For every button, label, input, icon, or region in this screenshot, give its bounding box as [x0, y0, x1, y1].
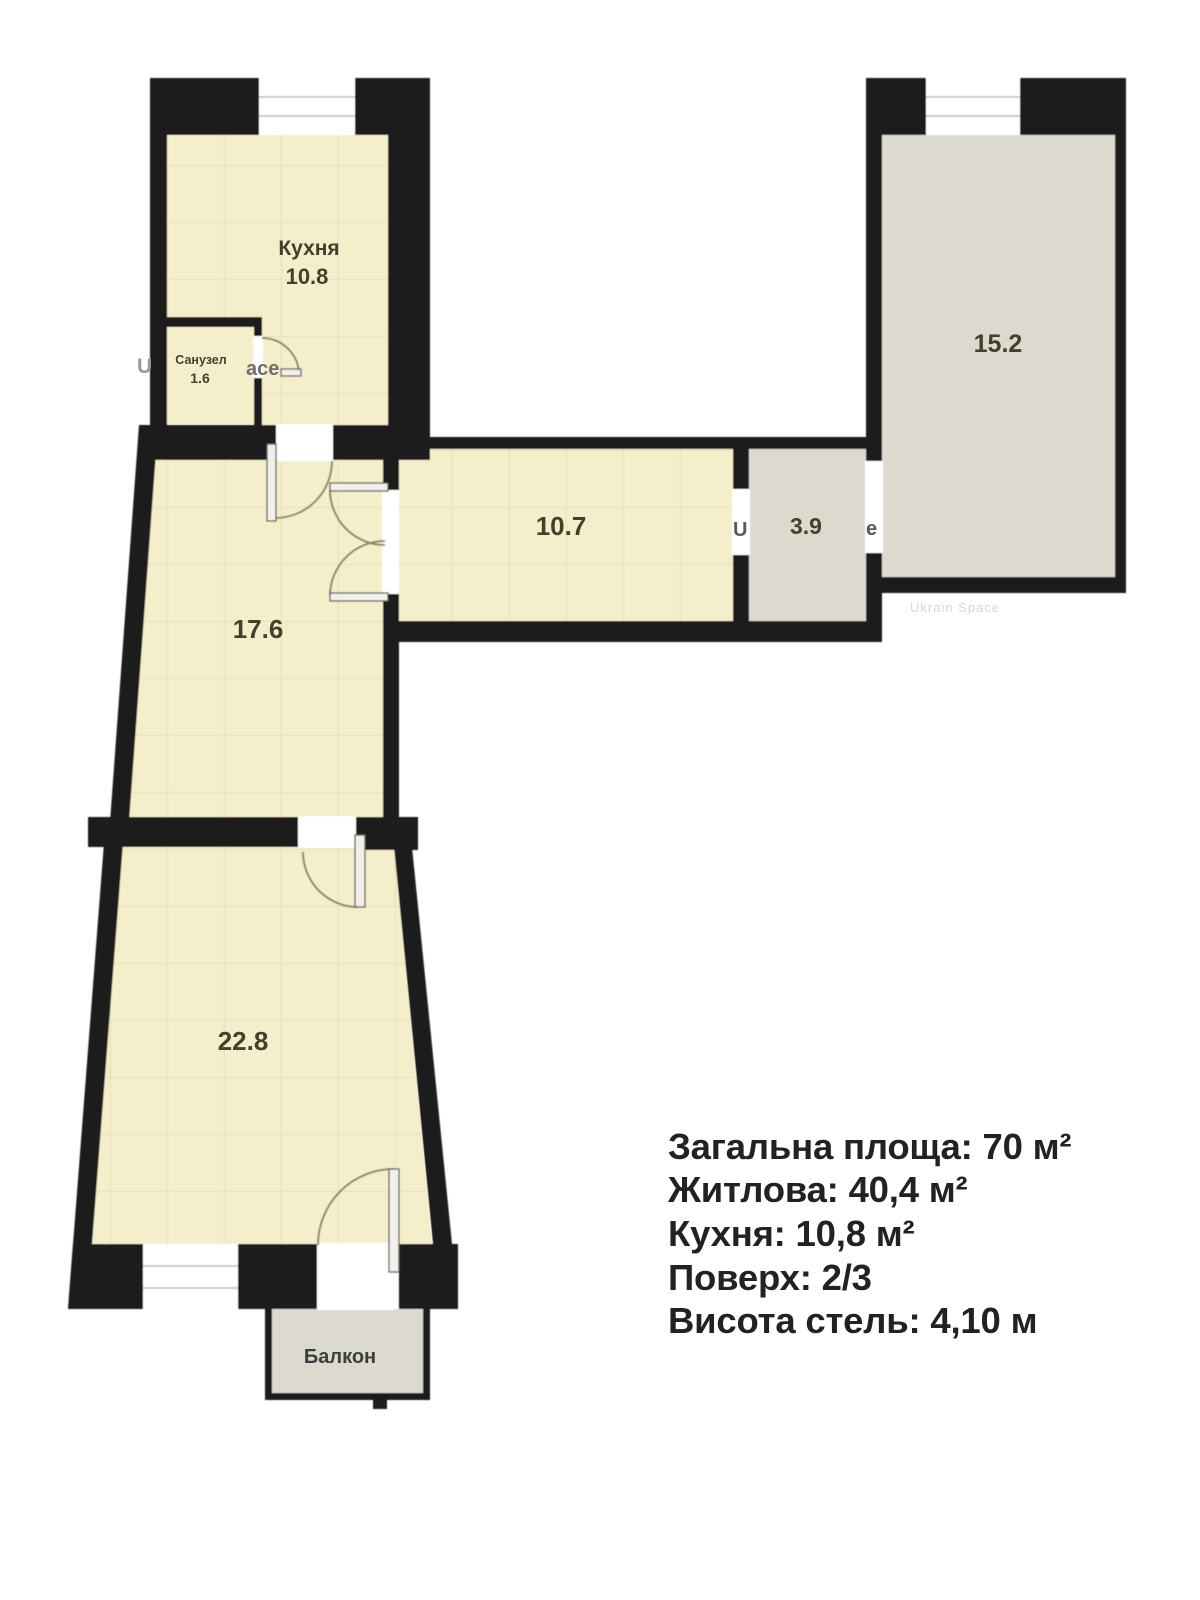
svg-text:U: U	[137, 355, 152, 378]
svg-text:3.9: 3.9	[790, 513, 822, 539]
svg-text:Загальна площа: 70 м²: Загальна площа: 70 м²	[668, 1126, 1071, 1167]
svg-text:10.8: 10.8	[286, 264, 329, 289]
svg-text:Кухня: 10,8 м²: Кухня: 10,8 м²	[668, 1213, 915, 1254]
svg-text:e: e	[866, 518, 877, 540]
svg-text:Кухня: Кухня	[278, 237, 339, 260]
svg-text:Ukrain Space: Ukrain Space	[910, 600, 1000, 615]
svg-text:Балкон: Балкон	[304, 1346, 376, 1368]
svg-text:10.7: 10.7	[536, 511, 587, 541]
svg-text:ace: ace	[246, 358, 279, 380]
svg-text:1.6: 1.6	[190, 370, 210, 386]
svg-text:Поверх: 2/3: Поверх: 2/3	[668, 1257, 872, 1298]
svg-text:15.2: 15.2	[974, 330, 1023, 358]
svg-text:22.8: 22.8	[218, 1026, 269, 1056]
svg-text:Висота стель: 4,10 м: Висота стель: 4,10 м	[668, 1300, 1037, 1341]
svg-text:Житлова: 40,4 м²: Житлова: 40,4 м²	[667, 1169, 968, 1210]
svg-text:Санузел: Санузел	[175, 353, 226, 367]
svg-text:U: U	[733, 519, 747, 541]
svg-text:17.6: 17.6	[233, 614, 284, 644]
